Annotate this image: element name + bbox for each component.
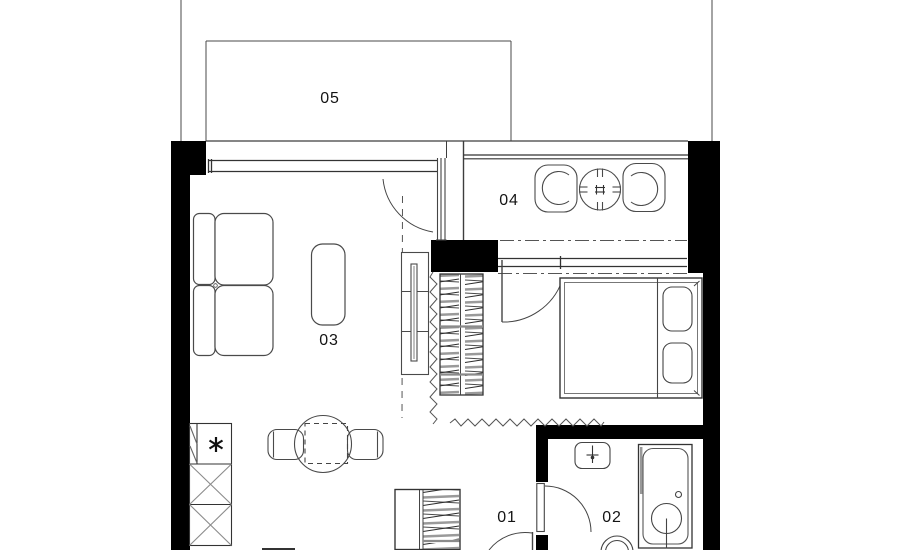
wall-corner-top-left bbox=[171, 141, 206, 175]
sofa bbox=[194, 214, 274, 356]
room-label-living-room: 03 bbox=[319, 332, 338, 349]
dining-chair-left bbox=[268, 430, 304, 460]
bathtub bbox=[639, 445, 693, 549]
window-loggia-glazing bbox=[464, 155, 689, 159]
zigzag-partition-horizontal bbox=[450, 419, 604, 426]
sofa-seat-bottom bbox=[215, 286, 273, 356]
sofa-back-top bbox=[194, 214, 216, 285]
room-label-loggia: 04 bbox=[499, 192, 518, 209]
loggia-table bbox=[579, 169, 621, 211]
entrance-door bbox=[489, 532, 533, 550]
bathroom-sink bbox=[575, 443, 610, 469]
door-swing-arc bbox=[502, 281, 562, 322]
wall-bathroom-left-lower bbox=[536, 535, 548, 550]
wall-right-lower bbox=[703, 273, 720, 550]
room-label-hallway: 01 bbox=[497, 509, 516, 526]
dining-chair-right bbox=[348, 430, 384, 460]
window-living-room bbox=[208, 159, 437, 173]
sofa-back-bottom bbox=[194, 286, 216, 356]
balcony-outline bbox=[206, 41, 511, 141]
room-label-bathroom: 02 bbox=[602, 509, 621, 526]
wall-centerlines bbox=[498, 241, 687, 274]
door-swing-arc bbox=[489, 532, 532, 550]
dining-table-top-dashed bbox=[305, 424, 348, 464]
toilet bbox=[601, 536, 633, 550]
balcony-door bbox=[383, 158, 447, 240]
bedroom-door bbox=[502, 260, 562, 322]
bathroom-door bbox=[537, 484, 591, 533]
window-bedroom bbox=[498, 256, 687, 269]
loggia-chair-right bbox=[623, 164, 665, 212]
bed bbox=[560, 278, 702, 398]
wall-left bbox=[171, 141, 190, 550]
wall-right-upper bbox=[688, 141, 720, 273]
chaise-lounge bbox=[312, 244, 346, 325]
wall-mid-block bbox=[431, 240, 498, 272]
hallway-wardrobe bbox=[395, 490, 460, 550]
zigzag-partition-vertical bbox=[430, 272, 437, 424]
pillow bbox=[663, 343, 692, 383]
loggia-chair-left bbox=[535, 165, 577, 212]
wall-bathroom-top bbox=[536, 425, 703, 439]
door-swing-arc bbox=[383, 179, 433, 232]
pillow bbox=[663, 287, 692, 331]
tv-sideboard bbox=[402, 253, 429, 375]
site-boundary-lines bbox=[181, 0, 712, 141]
sofa-seat-top bbox=[215, 214, 273, 286]
floor-plan: 05 04 03 01 02 bbox=[0, 0, 900, 550]
wall-bathroom-left-upper bbox=[536, 425, 548, 482]
door-swing-arc bbox=[545, 486, 591, 532]
bedroom-wardrobe bbox=[440, 274, 483, 395]
room-label-balcony: 05 bbox=[320, 90, 339, 107]
